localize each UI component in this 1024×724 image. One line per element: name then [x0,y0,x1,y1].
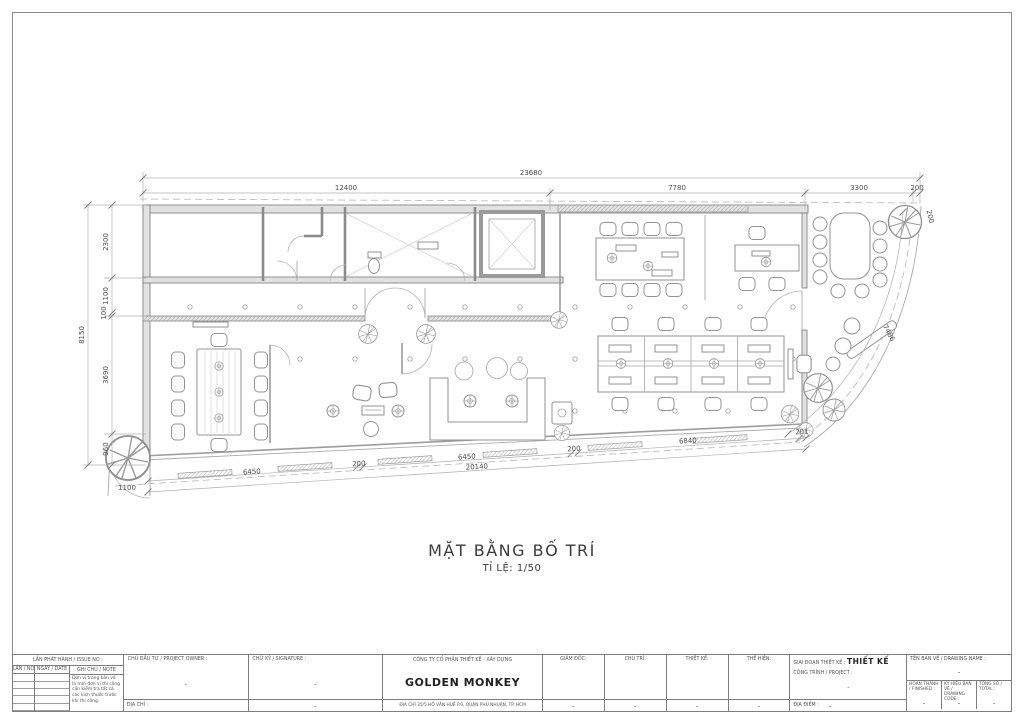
role-column-designer: THIẾT KẾ: - [666,655,728,711]
dim-label: 1100 [118,484,136,492]
finished-value: - [907,699,941,707]
lounge-area [327,382,404,437]
signature-label: CHỮ KÝ / SIGNATURE : [253,657,307,662]
dim-label: 6450 [458,452,476,461]
issue-note: Đơn vị trong bản vẽ là mm đơn vị thi côn… [70,675,123,706]
tree-icon [551,312,568,329]
dim-label: 2300 [102,233,110,251]
elevator-shaft [481,212,543,276]
dim-label: 6840 [679,436,697,445]
stage-label: GIAI ĐOẠN THIẾT KẾ : [793,661,845,666]
dim-label: 200 [352,460,366,469]
project-label: CÔNG TRÌNH / PROJECT : [793,671,852,676]
dim-label: 1100 [102,287,110,305]
dim-label: 200 [567,445,581,454]
dim-label: 100 [100,306,108,319]
dim-top-total: 23680 [520,169,542,177]
role-value: - [634,702,636,710]
dim-label: 3300 [850,184,868,192]
drawing-name-column: TÊN BẢN VẼ / DRAWING NAME : - HOÀN THÀNH… [906,655,1011,711]
owner-column: CHỦ ĐẦU TƯ / PROJECT OWNER : - ĐỊA CHỈ : [123,655,248,711]
signature-value: - [249,680,383,688]
drawing-title-text: MẶT BẰNG BỐ TRÍ [0,541,1024,560]
role-column-lead: CHỦ TRÌ: - [604,655,666,711]
tree-icon [417,325,436,344]
drawing-name-label: TÊN BẢN VẼ / DRAWING NAME : [910,657,986,662]
role-column-drafter: THỂ HIỆN: - [728,655,790,711]
dim-label: 200 [925,209,936,224]
tree-icon [554,425,569,440]
terrace-area [813,213,898,371]
director-desk [735,227,799,291]
code-value: - [942,699,976,707]
tree-icon [781,405,799,423]
role-label: CHỦ TRÌ: [605,657,666,662]
issue-col-date: NGÀY / DATE [37,667,67,672]
total-value: - [977,699,1011,707]
company-type: CÔNG TY CỔ PHẦN THIẾT KẾ - XÂY DỰNG [383,658,542,663]
issue-header: LẦN PHÁT HÀNH / ISSUE NO : [33,658,103,663]
title-block: LẦN PHÁT HÀNH / ISSUE NO : LẦN / NO NGÀY… [12,654,1012,712]
role-value: - [572,702,574,710]
owner-label: CHỦ ĐẦU TƯ / PROJECT OWNER : [128,657,208,662]
role-label: THỂ HIỆN: [729,657,790,662]
dim-label: 200 [910,184,923,192]
owner-address-label: ĐỊA CHỈ : [127,703,148,708]
project-value: - [790,683,906,691]
role-column-director: GIÁM ĐỐC: - [542,655,604,711]
tree-icon [804,374,833,403]
tree-icon [106,436,150,480]
conference-table [172,334,268,452]
location-value: - [829,702,831,710]
dim-bottom-total: 20140 [465,462,488,471]
role-value: - [758,702,760,710]
tree-icon [359,325,378,344]
role-value: - [696,702,698,710]
meeting-table [596,223,684,297]
dim-label: 960 [102,442,110,455]
finished-label: HOÀN THÀNH / FINISHED : [907,681,941,693]
role-label: THIẾT KẾ: [667,657,728,662]
company-address: ĐỊA CHỈ 35/5 HỒ VĂN HUÊ P.9, QUẬN PHÚ NH… [399,703,526,708]
tree-icon [823,399,845,421]
reception-counter [430,358,572,441]
dim-left-total: 8150 [78,326,86,344]
signature-bottom-value: - [314,702,316,710]
role-label: GIÁM ĐỐC: [543,657,604,662]
total-label: TỔNG SỐ / TOTAL : [977,681,1011,693]
dim-label: 7780 [668,184,686,192]
stage-value: THIẾT KẾ [847,657,889,666]
issue-column: LẦN PHÁT HÀNH / ISSUE NO : LẦN / NO NGÀY… [13,655,123,711]
drawing-name-value: - [907,668,1011,676]
workstation-cluster [598,318,811,411]
company-column: CÔNG TY CỔ PHẦN THIẾT KẾ - XÂY DỰNG GOLD… [382,655,542,711]
company-name: GOLDEN MONKEY [383,676,542,689]
owner-value: - [124,680,248,688]
dim-label: 3690 [102,366,110,384]
drawing-title: MẶT BẰNG BỐ TRÍ TỈ LỆ: 1/50 [0,541,1024,574]
dim-label: 6450 [243,467,261,476]
location-label: ĐỊA ĐIỂM : [793,703,818,708]
drawing-scale-text: TỈ LỆ: 1/50 [0,563,1024,574]
issue-col-no: LẦN / NO [13,667,35,672]
dim-label: 201 [795,428,809,437]
issue-col-note: GHI CHÚ / NOTE [77,668,116,673]
stage-column: GIAI ĐOẠN THIẾT KẾ : THIẾT KẾ CÔNG TRÌNH… [789,655,906,711]
dim-label: 12400 [335,184,357,192]
signature-column: CHỮ KÝ / SIGNATURE : - - [248,655,383,711]
